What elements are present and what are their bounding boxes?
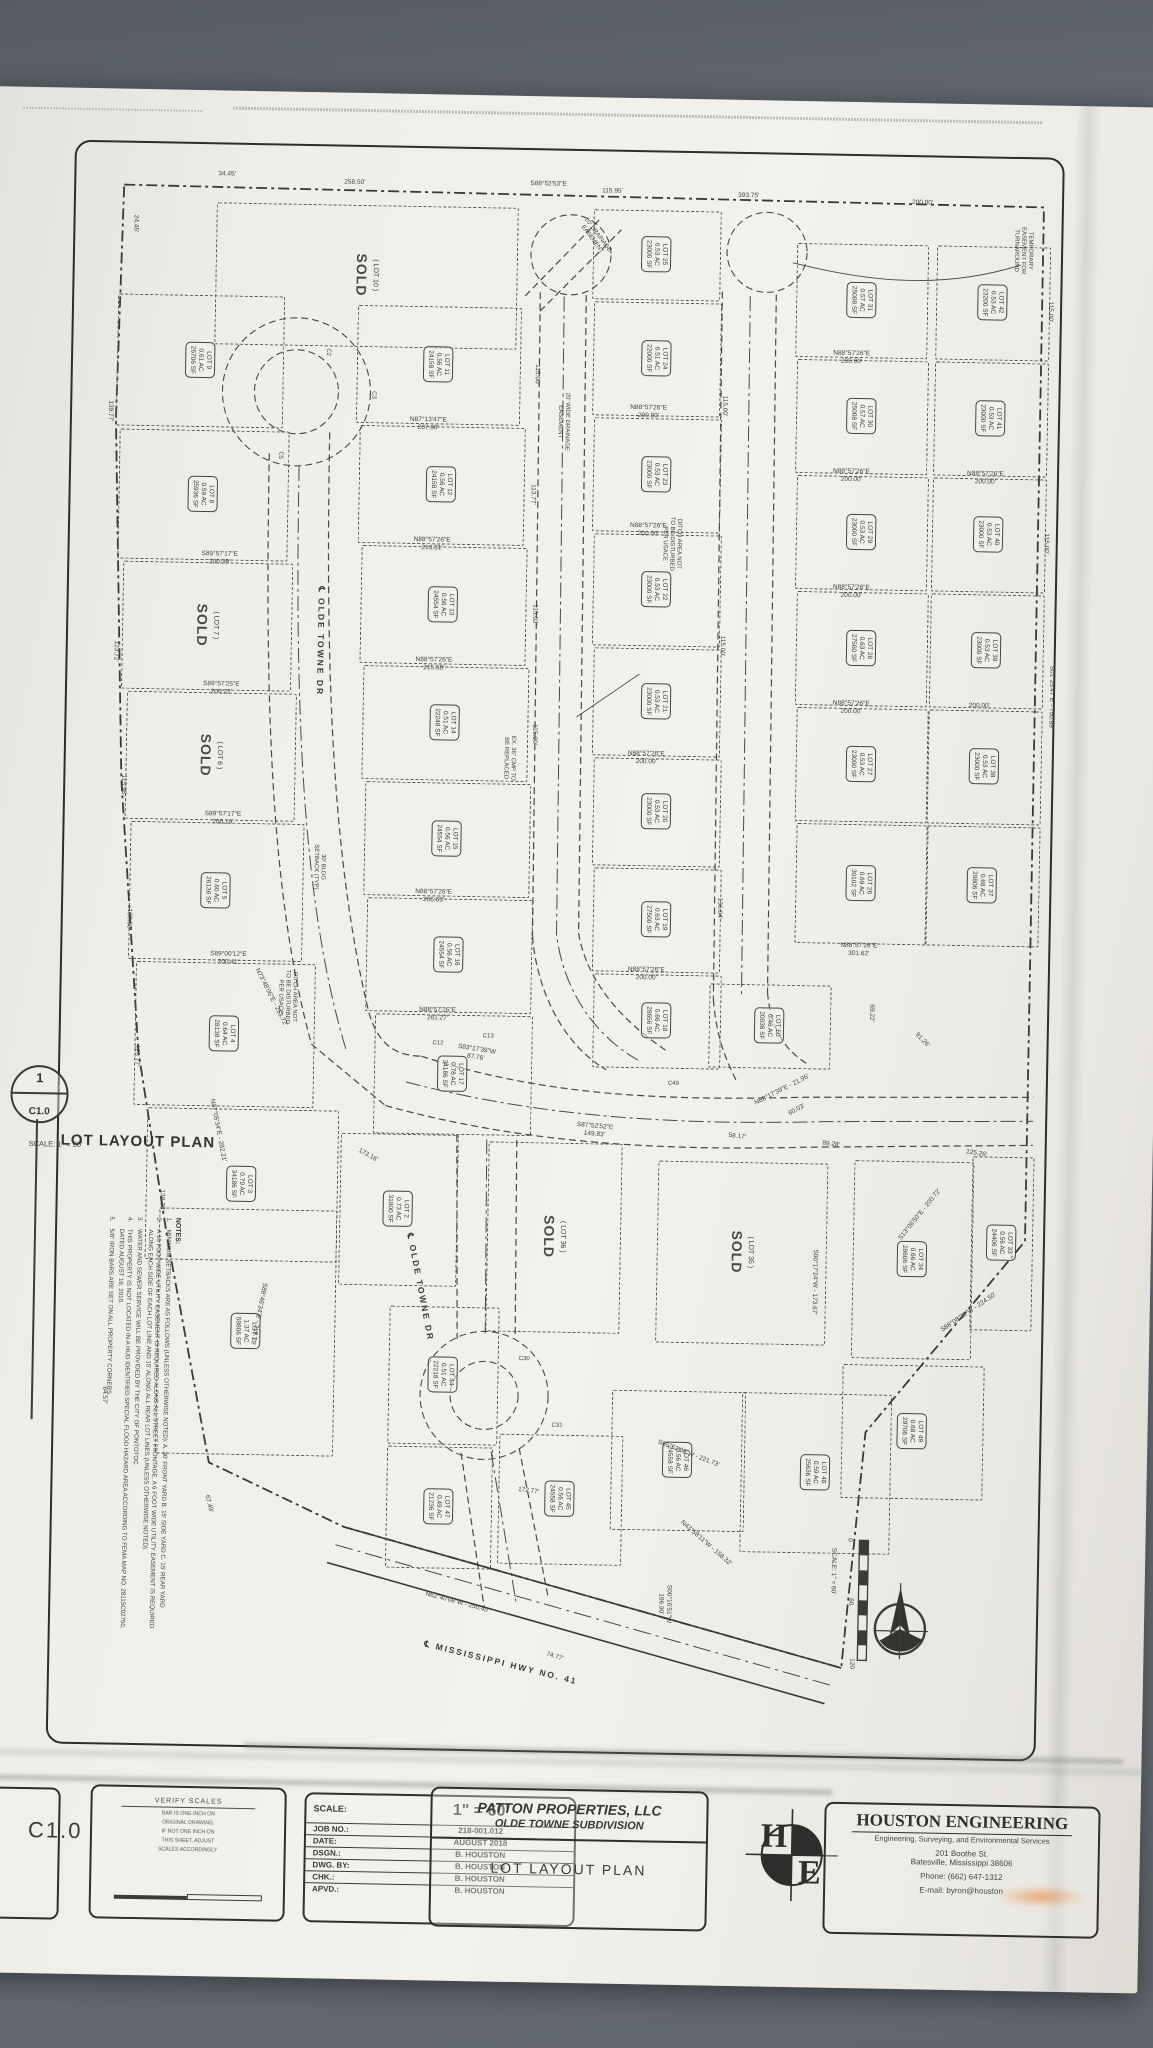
north-arrow-icon: [873, 1583, 928, 1660]
dimension-label: 30' BLDG SETBACK (TYP): [311, 844, 326, 890]
dimension-label: 132.88': [125, 909, 133, 930]
lot-label: LOT 120.56 AC24158 SF: [425, 466, 456, 503]
curve-label: C5: [276, 451, 283, 459]
sheet-title: LOT LAYOUT PLAN: [431, 1839, 706, 1880]
project-title-cell: PATTON PROPERTIES, LLC OLDE TOWNE SUBDIV…: [432, 1789, 707, 1844]
lot-label: LOT 170.78 AC34186 SF: [436, 1055, 467, 1092]
lot-label: LOT 250.53 AC23000 SF: [641, 236, 672, 273]
curve-label: C2: [324, 348, 331, 356]
dimension-label: N88°57'26"E 200.00': [628, 966, 665, 982]
sheet-number-box: C1.0: [0, 1786, 61, 1920]
dimension-label: EX. 36" CMP TO BE REPLACED: [501, 736, 516, 781]
dimension-label: 115.02': [530, 604, 538, 625]
dimension-label: 34.45': [218, 170, 236, 178]
lot-label: LOT 380.53 AC23000 SF: [968, 748, 999, 785]
lot-label: LOT 20.73 AC31800 SF: [382, 1190, 413, 1227]
dimension-label: 20' WIDE DRAINAGE EASEMENT: [555, 393, 570, 451]
dimension-label: 115.00': [720, 396, 728, 417]
logo-letter-h: H: [760, 1818, 787, 1855]
dimension-label: 60: [847, 1598, 855, 1605]
curve-label: C30: [519, 1356, 530, 1363]
dimension-label: 115.00': [1046, 302, 1054, 323]
curve-label: C12: [432, 1040, 443, 1047]
dimension-label: 115.00': [533, 364, 541, 385]
lot-label: LOT 390.53 AC23000 SF: [970, 632, 1001, 669]
lot-label: LOT 190.63 AC27500 SF: [640, 901, 671, 938]
dimension-label: N88°57'26"E 200.00': [628, 750, 665, 766]
sheet-number: C1.0: [28, 1817, 83, 1844]
dimension-label: 120: [847, 1658, 855, 1669]
logo-letter-e: E: [798, 1854, 821, 1891]
dimension-label: 69.22': [867, 1004, 875, 1022]
dimension-label: 200.00': [912, 199, 933, 207]
lot-sold-label: ( LOT 7 )SOLD: [191, 600, 222, 649]
verify-scales-title: VERIFY SCALES: [121, 1797, 256, 1809]
lot-label: LOT 200.53 AC23000 SF: [640, 793, 671, 830]
dimension-label: S87°52'52"E 149.83': [576, 1121, 614, 1140]
callout-sheet: C1.0: [12, 1106, 66, 1118]
dimension-label: N88°57'26"E 200.00': [630, 404, 667, 420]
callout-number: 1: [13, 1070, 67, 1086]
dimension-label: S89°57'25"E 200.22': [203, 680, 240, 696]
dimension-label: 200.00': [969, 702, 990, 710]
dimension-label: N88°57'26"E 301.62': [840, 942, 877, 958]
verify-scale-bar: [114, 1895, 187, 1900]
firm-email-text: E-mail: byron@houston: [919, 1885, 1003, 1896]
verify-scales-lines: BAR IS ONE INCH ONORIGINAL DRAWING.IF NO…: [92, 1809, 285, 1855]
lot-label: LOT 410.53 AC23000 SF: [975, 400, 1006, 437]
lot-label: LOT 240.51 AC22000 SF: [641, 340, 672, 377]
verify-scale-bar-outline: [187, 1894, 262, 1901]
lot-label: LOT 290.53 AC23000 SF: [845, 514, 876, 551]
lot-label: LOT 470.49 AC21236 SF: [423, 1488, 454, 1525]
lot-label: LOT 270.53 AC23000 SF: [845, 746, 876, 783]
lot-label: LOT 50.60 AC26136 SF: [200, 872, 231, 909]
dimension-label: N88°57'26"E 200.00': [833, 584, 870, 600]
curve-label: C13: [483, 1033, 494, 1040]
dimension-label: SCALE: 1" = 60': [829, 1548, 838, 1595]
dimension-label: 115.00': [718, 636, 726, 657]
dimension-label: N88°57'26"E 215.68': [415, 656, 452, 672]
lot-label: LOT 110.56 AC24158 SF: [422, 346, 453, 383]
dimension-label: N88°57'26"E 213.31': [414, 536, 451, 552]
lot-label: LOT 370.68 AC29806 SF: [966, 867, 997, 904]
lot-label: LOT 160.56 AC24554 SF: [433, 936, 464, 973]
lot-label: LOT 140.51 AC22248 SF: [429, 704, 460, 741]
dimension-label: N88°57'26"E 200.00': [833, 350, 870, 366]
marker-smudge: [995, 1885, 1087, 1909]
lot-label: LOT 220.53 AC23000 SF: [640, 571, 671, 608]
dimension-label: N88°57'26"E 265.63': [415, 888, 452, 904]
dimension-label: N88°57'26"E 200.00': [833, 700, 870, 716]
dimension-label: 24.45': [132, 215, 140, 233]
dimension-label: N88°57'26"E 200.00': [967, 470, 1004, 486]
dimension-label: 258.50': [344, 179, 365, 187]
lot-label: LOT 490.68 AC29706 SF: [896, 1413, 927, 1450]
lot-label: LOT 340.66 AC28606 SF: [896, 1241, 927, 1278]
lot-sold-label: ( LOT 10 )SOLD: [350, 250, 381, 299]
lot-label: LOT 330.56 AC24406 SF: [985, 1224, 1016, 1261]
lot-label: LOT 400.53 AC23000 SF: [972, 516, 1003, 553]
dimension-label: S01°25'47"E - 750.89': [1047, 666, 1056, 730]
dimension-label: 393.75': [738, 192, 759, 200]
lot-label: LOT 180.66 AC28656 SF: [640, 1002, 671, 1039]
lot-label: LOT 300.57 AC25008 SF: [846, 398, 877, 435]
road-name-label: ℄ OLDE TOWNE DR: [315, 586, 327, 696]
dimension-label: S88°52'53"E: [530, 180, 567, 188]
dimension-label: 115.95': [602, 187, 623, 195]
lot-label: LOT 30.79 AC34186 SF: [225, 1166, 256, 1203]
dimension-label: 138.38': [158, 1189, 166, 1210]
lot-label: LOT 500.46 AC20036 SF: [753, 1007, 784, 1044]
firm-email: E-mail: byron@houston: [825, 1884, 1097, 1898]
detail-callout-bubble: 1 C1.0: [10, 1065, 69, 1124]
lot-label: LOT 420.53 AC23200 SF: [977, 284, 1008, 321]
dimension-label: 64.57': [100, 1386, 108, 1404]
graphic-scale-bar: [857, 1540, 868, 1660]
dimension-label: 115.98': [119, 775, 127, 796]
dimension-label: 115.00': [1042, 533, 1050, 554]
firm-name: HOUSTON ENGINEERING: [852, 1810, 1072, 1836]
paper-sheet: 1 C1.0 LOT LAYOUT PLAN SCALE: 1" = 60' N…: [0, 86, 1153, 1993]
dimension-label: S00°16'51"W 196.90': [656, 1585, 672, 1624]
lot-label: LOT 260.69 AC30102 SF: [845, 865, 876, 902]
dimension-label: N88°57'26"E 261.27': [419, 1006, 456, 1022]
lot-label: LOT 450.56 AC24558 SF: [544, 1480, 575, 1517]
lot-sold-label: ( LOT 35 )SOLD: [725, 1227, 756, 1276]
lot-label: LOT 40.64 AC28138 SF: [208, 1015, 239, 1052]
project-name: OLDE TOWNE SUBDIVISION: [434, 1817, 704, 1834]
lot-sold-label: ( LOT 36 )SOLD: [537, 1212, 568, 1261]
firm-phone: Phone: (662) 647-1312: [825, 1870, 1097, 1884]
plan-scale: SCALE: 1" = 60': [29, 1139, 83, 1149]
photographed-plan-sheet: 1 C1.0 LOT LAYOUT PLAN SCALE: 1" = 60' N…: [0, 0, 1153, 2048]
dimension-label: 0: [846, 1538, 854, 1542]
dimension-label: S00°17'24"W - 173.67': [810, 1249, 819, 1314]
lot-label: LOT 230.53 AC23000 SF: [640, 456, 671, 493]
lot-label: LOT 210.53 AC23000 SF: [640, 683, 671, 720]
lot-sold-label: ( LOT 6 )SOLD: [194, 731, 225, 780]
lot-label: LOT 130.56 AC24554 SF: [427, 586, 458, 623]
dimension-label: 123.77': [132, 1045, 140, 1066]
curve-label: C49: [668, 1081, 679, 1088]
dimension-label: DITCH AREA NOT TO BE DISTURBED PER USACE: [275, 970, 298, 1025]
dimension-label: S89°57'17"E 200.19': [204, 810, 241, 826]
dimension-label: N87°13'47"E 207.96': [410, 416, 447, 432]
dimension-label: 136.04': [715, 898, 723, 919]
curve-label: C31: [551, 1423, 562, 1430]
dimension-label: 123.72': [112, 640, 120, 661]
verify-scales-box: VERIFY SCALES BAR IS ONE INCH ONORIGINAL…: [88, 1784, 286, 1922]
dimension-label: DITCH AREA NOT TO BE DISTURBED PER USACE: [660, 516, 683, 571]
curve-label: C3: [369, 391, 376, 399]
dimension-label: S89°57'17"E 200.39': [201, 550, 238, 566]
engineering-firm-box: HOUSTON ENGINEERING Engineering, Surveyi…: [822, 1802, 1100, 1939]
dimension-label: TEMPORARY EASEMENT FOR TURNAROUND: [1011, 227, 1033, 275]
lot-label: LOT 480.59 AC25636 SF: [799, 1454, 830, 1491]
dimension-label: S89°00'12"E 200.41': [210, 950, 247, 966]
lot-label: LOT 310.57 AC25008 SF: [846, 282, 877, 319]
lot-label: LOT 150.56 AC24554 SF: [431, 820, 462, 857]
dimension-label: N88°57'26"E 200.00': [833, 468, 870, 484]
dimension-label: 115.00': [530, 724, 538, 745]
lot-label: LOT 280.63 AC27500 SF: [845, 630, 876, 667]
lot-label: LOT 440.51 AC22218 SF: [427, 1356, 458, 1393]
lot-label: LOT 80.59 AC25936 SF: [187, 476, 218, 513]
lot-layout-plan: 1 C1.0 LOT LAYOUT PLAN SCALE: 1" = 60' N…: [0, 86, 1153, 1993]
dimension-label: 139.77': [106, 400, 114, 421]
dimension-label: 113.77': [529, 484, 537, 505]
project-title-box: PATTON PROPERTIES, LLC OLDE TOWNE SUBDIV…: [428, 1786, 709, 1931]
lot-label: LOT 90.61 AC26706 SF: [184, 342, 215, 379]
